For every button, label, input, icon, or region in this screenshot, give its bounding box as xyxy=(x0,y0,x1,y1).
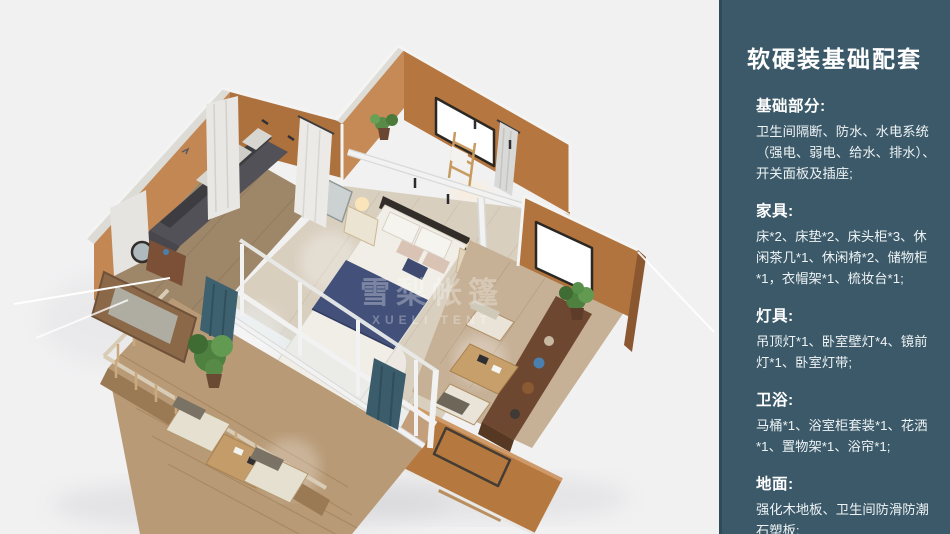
section-heading: 地面: xyxy=(756,472,936,494)
watermark-en: XUELI TENT xyxy=(372,313,492,327)
floorplan-render: 雪梨帐篷 XUELI TENT xyxy=(0,0,719,534)
section-body: 马桶*1、浴室柜套装*1、花洒*1、置物架*1、浴帘*1; xyxy=(756,415,936,457)
watermark-cn: 雪梨帐篷 xyxy=(360,277,504,310)
section-heading: 卫浴: xyxy=(756,388,936,410)
section-flooring: 地面: 强化木地板、卫生间防滑防潮石塑板; xyxy=(756,472,936,534)
section-body: 卫生间隔断、防水、水电系统（强电、弱电、给水、排水）、开关面板及插座; xyxy=(756,121,936,184)
sidebar-sections: 基础部分: 卫生间隔断、防水、水电系统（强电、弱电、给水、排水）、开关面板及插座… xyxy=(719,74,950,534)
section-heading: 灯具: xyxy=(756,304,936,326)
white-curtain xyxy=(294,118,332,228)
section-furniture: 家具: 床*2、床垫*2、床头柜*3、休闲茶几*1、休闲椅*2、储物柜*1，衣帽… xyxy=(756,199,936,289)
watermark: 雪梨帐篷 XUELI TENT xyxy=(360,277,504,327)
section-bathroom: 卫浴: 马桶*1、浴室柜套装*1、花洒*1、置物架*1、浴帘*1; xyxy=(756,388,936,457)
section-lighting: 灯具: 吊顶灯*1、卧室壁灯*4、镜前灯*1、卧室灯带; xyxy=(756,304,936,373)
presentation-slide: 雪梨帐篷 XUELI TENT 软硬装基础配套 基础部分: 卫生间隔断、防水、水… xyxy=(0,0,950,534)
white-curtain xyxy=(206,96,240,220)
section-heading: 家具: xyxy=(756,199,936,221)
floorplan-3d-svg: 雪梨帐篷 XUELI TENT xyxy=(0,0,719,534)
section-body: 床*2、床垫*2、床头柜*3、休闲茶几*1、休闲椅*2、储物柜*1，衣帽架*1、… xyxy=(756,226,936,289)
section-heading: 基础部分: xyxy=(756,94,936,116)
sidebar-title: 软硬装基础配套 xyxy=(723,40,946,74)
spec-sidebar: 软硬装基础配套 基础部分: 卫生间隔断、防水、水电系统（强电、弱电、给水、排水）… xyxy=(719,0,950,534)
section-basics: 基础部分: 卫生间隔断、防水、水电系统（强电、弱电、给水、排水）、开关面板及插座… xyxy=(756,94,936,184)
section-body: 强化木地板、卫生间防滑防潮石塑板; xyxy=(756,499,936,534)
section-body: 吊顶灯*1、卧室壁灯*4、镜前灯*1、卧室灯带; xyxy=(756,331,936,373)
